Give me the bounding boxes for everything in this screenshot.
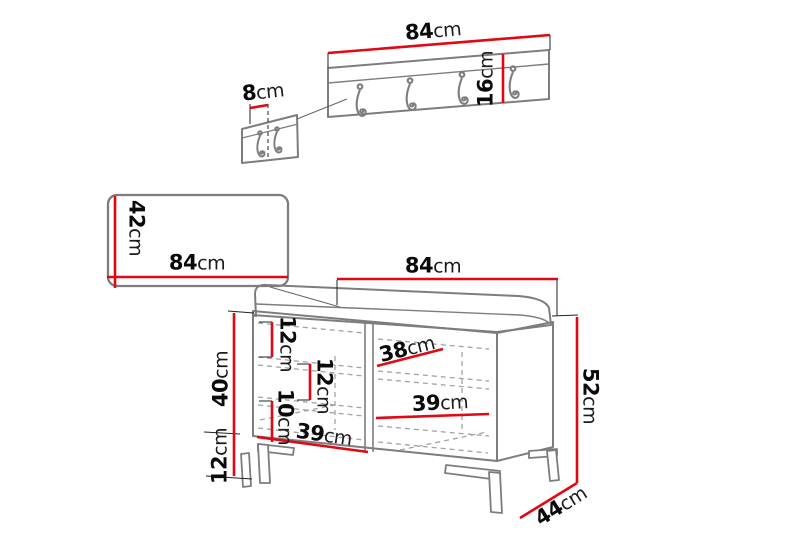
dim-label-middle-shelf-width: 39cm [411, 391, 468, 415]
coat-hook-icon [407, 78, 416, 110]
dim-label-top-section-height: 12cm [277, 316, 298, 372]
coat-rack-drawing [328, 50, 549, 117]
bench-legs [241, 444, 559, 513]
dim-label-mirror-width: 84cm [169, 253, 225, 274]
technical-drawing [0, 0, 800, 533]
dim-label-bench-total-height: 52cm [580, 368, 601, 424]
dim-label-middle-section-height: 12cm [314, 358, 335, 414]
coat-hook-icon [459, 72, 468, 104]
dim-label-hook-panel-width: 8cm [241, 79, 285, 104]
coat-hook-icon [510, 66, 519, 98]
dim-label-bench-width: 84cm [405, 256, 461, 277]
dim-label-leg-height: 12cm [210, 428, 231, 484]
leader-line-mirror-panel [270, 287, 340, 307]
dim-line-hook-panel-width [250, 105, 268, 108]
dim-label-mirror-height: 42cm [126, 200, 147, 256]
furniture-dimension-diagram: 84cm 16cm 8cm 42cm 84cm 84cm 52cm 44cm 4… [0, 0, 800, 533]
dim-label-rack-height: 16cm [476, 51, 497, 107]
dim-label-carcass-height: 40cm [211, 351, 232, 407]
coat-hook-icon [357, 84, 366, 116]
dim-label-rack-width: 84cm [404, 18, 462, 44]
coat-hook-icon [257, 131, 264, 156]
dim-label-bottom-section-height: 10cm [275, 389, 296, 445]
coat-hook-icon [274, 127, 281, 152]
